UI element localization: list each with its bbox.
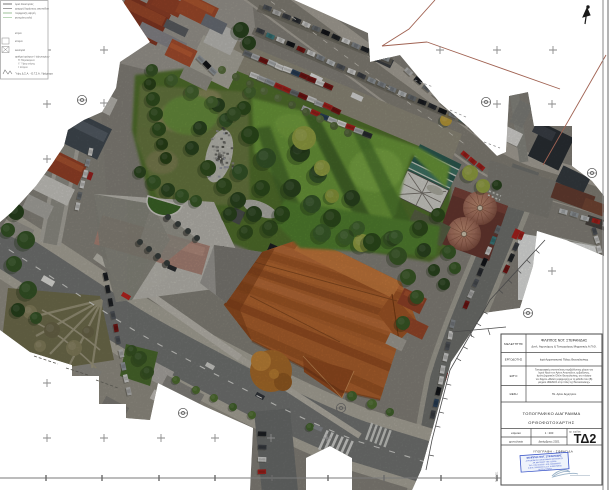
svg-text:χρονολογία: χρονολογία	[509, 439, 523, 443]
svg-text:1 : 200: 1 : 200	[545, 431, 554, 435]
svg-text:ΤΔ2: ΤΔ2	[574, 432, 597, 446]
svg-text:Διπλ. Αγρονόμος & Τοπογράφος Μ: Διπλ. Αγρονόμος & Τοπογράφος Μηχανικός Α…	[531, 345, 596, 349]
svg-text:ΦΙΛΙΠΠΟΣ ΝΟΤ. ΣΤΕΦΑΝΙΔΗΣ: ΦΙΛΙΠΠΟΣ ΝΟΤ. ΣΤΕΦΑΝΙΔΗΣ	[541, 339, 587, 343]
svg-text:μνημείο UNESCO στην πόλη της Θ: μνημείο UNESCO στην πόλη της Θεσσαλονίκη…	[538, 381, 591, 384]
svg-text:ΕΡΓΟΔΟΤΗΣ: ΕΡΓΟΔΟΤΗΣ	[505, 358, 523, 362]
svg-text:ΟΡΘΟΦΩΤΟΧΑΡΤΗΣ: ΟΡΘΟΦΩΤΟΧΑΡΤΗΣ	[528, 420, 575, 425]
svg-text:ΜΕΛΕΤΗΤΗΣ: ΜΕΛΕΤΗΤΗΣ	[504, 342, 523, 346]
svg-text:Ιερά Αρχιεπισκοπή Πόλης Θεσσαλ: Ιερά Αρχιεπισκοπή Πόλης Θεσσαλονίκης	[540, 358, 589, 362]
svg-text:ΕΡΓΟ: ΕΡΓΟ	[510, 374, 518, 378]
svg-text:κτίσμα: κτίσμα	[15, 39, 23, 43]
svg-text:Πλ. Αγίου Δημητρίου: Πλ. Αγίου Δημητρίου	[552, 392, 577, 396]
svg-text:Ύψη: Δ.Σ.Α. - Ε.Γ.Σ.Α. Υψό: Ύψη: Δ.Σ.Α. - Ε.Γ.Σ.Α. Υψόμετρα	[15, 72, 53, 76]
svg-text:αριθμοί ορόφων / ύψη κτιρίων: αριθμοί ορόφων / ύψη κτιρίων	[15, 55, 50, 59]
svg-text:ΤΟΠΟΓΡΑΦΙΚΟ ΔΙΑΓΡΑΜΜΑ: ΤΟΠΟΓΡΑΦΙΚΟ ΔΙΑΓΡΑΜΜΑ	[523, 411, 581, 416]
svg-text:φυτεμένη αυλή: φυτεμένη αυλή	[15, 15, 33, 19]
svg-text:εκκλησία: εκκλησία	[15, 48, 26, 52]
svg-text:γραμμή δομήσεως οικοπέδου: γραμμή δομήσεως οικοπέδου	[15, 6, 50, 10]
svg-text:όρια ιδιοκτησίας: όρια ιδιοκτησίας	[15, 2, 34, 6]
svg-text:Δεκέμβριος 2021: Δεκέμβριος 2021	[538, 439, 560, 443]
svg-text:περίφραξη υψηλή: περίφραξη υψηλή	[15, 11, 36, 15]
svg-text:κλίμακα: κλίμακα	[511, 431, 521, 435]
svg-text:κτίρια: κτίρια	[15, 31, 22, 35]
svg-text:ΘΕΣΗ: ΘΕΣΗ	[509, 392, 517, 396]
svg-text:Ι: Ισόγειο: Ι: Ισόγειο	[18, 66, 28, 69]
